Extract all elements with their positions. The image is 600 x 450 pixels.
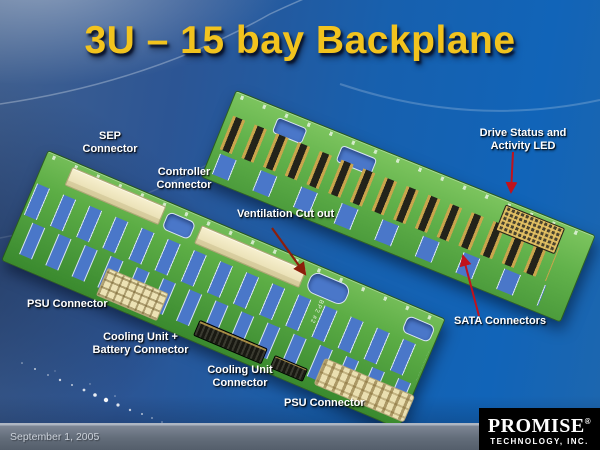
faint-arc <box>340 84 600 111</box>
footer-date: September 1, 2005 <box>10 431 99 443</box>
label-sata-connectors: SATA Connectors <box>454 315 546 328</box>
label-cooling-battery-connector: Cooling Unit + Battery Connector <box>68 331 213 357</box>
registered-mark: ® <box>585 417 591 426</box>
promise-logo: PROMISE® TECHNOLOGY, INC. <box>479 408 600 450</box>
label-sep-connector: SEP Connector <box>60 130 160 156</box>
label-psu-connector-bottom: PSU Connector <box>284 397 365 410</box>
slide-title: 3U – 15 bay Backplane <box>0 19 600 63</box>
label-cooling-unit-connector: Cooling Unit Connector <box>189 364 291 390</box>
logo-brand: PROMISE® <box>488 412 591 436</box>
label-psu-connector-left: PSU Connector <box>27 298 108 311</box>
label-ventilation-cutout: Ventilation Cut out <box>237 208 334 221</box>
label-controller-connector: Controller Connector <box>132 166 236 192</box>
sparkle-trail <box>21 362 163 423</box>
label-drive-status-led: Drive Status and Activity LED <box>455 127 591 153</box>
slide-root: 3U – 15 bay Backplane BP2 #2 <box>0 0 600 450</box>
logo-subtitle: TECHNOLOGY, INC. <box>490 437 588 446</box>
